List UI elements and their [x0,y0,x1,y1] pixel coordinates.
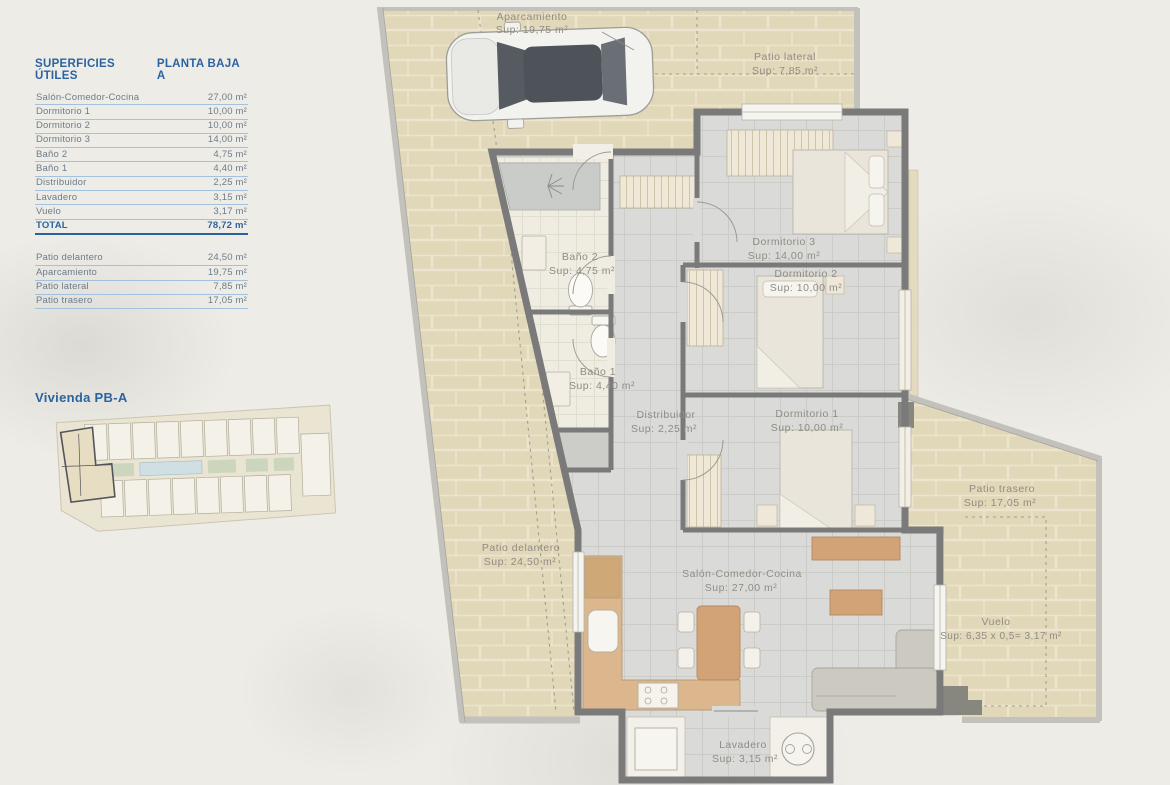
table-row: Aparcamiento19,75 m² [35,266,248,280]
unit-block-end [301,433,331,496]
table-row: Lavadero3,15 m² [35,191,248,205]
room-sup: Sup: 10,00 m² [770,282,842,294]
window [899,290,911,390]
room-label: Vuelo [982,616,1011,628]
room-label: Dormitorio 3 [752,236,815,248]
site-plan-graphic [56,405,336,533]
room-label: Aparcamiento [497,11,568,23]
table-row: Baño 14,40 m² [35,162,248,176]
room-sup: Sup: 4,40 m² [569,380,635,392]
window [573,552,584,632]
sink-vanity-icon [522,236,546,270]
car-hood [451,38,502,116]
washing-machine-icon [770,717,827,777]
room-sup: Sup: 2,25 m² [631,423,697,435]
room-sup: Sup: 3,15 m² [712,753,778,765]
room-sup: Sup: 17,05 m² [964,497,1036,509]
room-label: Dormitorio 1 [775,408,838,420]
entry-closet-icon [620,176,696,208]
car-roof [523,44,603,103]
window [934,585,946,670]
site-plan-title: Vivienda PB-A [35,390,128,405]
room-sup: Sup: 7,85 m² [752,65,818,77]
laundry-counter [627,717,685,777]
room-sup: Sup: 14,00 m² [748,250,820,262]
room-sup: Sup: 19,75 m² [496,24,568,36]
table-row: Patio delantero24,50 m² [35,252,248,266]
room-sup: Sup: 27,00 m² [705,582,777,594]
room-label: Patio delantero [482,542,560,554]
site-plan-thumbnail: Vivienda PB-A [35,390,336,533]
room-label: Dormitorio 2 [774,268,837,280]
table-row: Distribuidor2,25 m² [35,177,248,191]
table-header: SUPERFICIES ÚTILES PLANTA BAJA A [35,58,248,82]
plan-name: PLANTA BAJA A [157,58,248,82]
toilet-icon [569,273,593,315]
table-row: Vuelo3,17 m² [35,205,248,219]
room-label: Patio trasero [969,483,1035,495]
car-rear-window [601,37,627,106]
sideboard-icon [812,537,900,560]
pool [140,461,202,476]
table-row: Patio trasero17,05 m² [35,295,248,309]
table-total-row: TOTAL78,72 m² [35,220,248,235]
window [899,427,911,507]
room-label: Lavadero [719,739,767,751]
room-sup: Sup: 24,50 m² [484,556,556,568]
surface-table: SUPERFICIES ÚTILES PLANTA BAJA A Salón-C… [35,58,248,309]
wardrobe-icon [687,270,723,346]
room-sup: Sup: 4,75 m² [549,265,615,277]
stove-icon [638,683,678,708]
room-label: Salón-Comedor-Cocina [682,568,802,580]
unit-blocks-top [84,417,299,460]
fridge-icon [585,558,620,598]
table-row: Patio lateral7,85 m² [35,281,248,295]
page: SUPERFICIES ÚTILES PLANTA BAJA A Salón-C… [0,0,1170,785]
table-row: Dormitorio 314,00 m² [35,134,248,148]
room-sup: Sup: 10,00 m² [771,422,843,434]
room-label: Baño 1 [580,366,616,378]
table-row: Dormitorio 110,00 m² [35,105,248,119]
coffee-table-icon [830,590,882,615]
table-row: Dormitorio 210,00 m² [35,120,248,134]
table-gap [35,235,248,252]
room-sup: Sup: 6,35 x 0,5= 3,17 m² [940,631,1062,642]
wardrobe-icon [687,455,721,527]
kitchen-sink-icon [588,610,618,652]
table-title: SUPERFICIES ÚTILES [35,58,157,82]
room-label: Patio lateral [754,51,816,63]
room-label: Distribuidor [636,409,695,421]
room-label: Baño 2 [562,251,598,263]
window [742,104,842,120]
table-row: Baño 24,75 m² [35,148,248,162]
table-row: Salón-Comedor-Cocina27,00 m² [35,91,248,105]
car-mirror-right [508,119,524,129]
